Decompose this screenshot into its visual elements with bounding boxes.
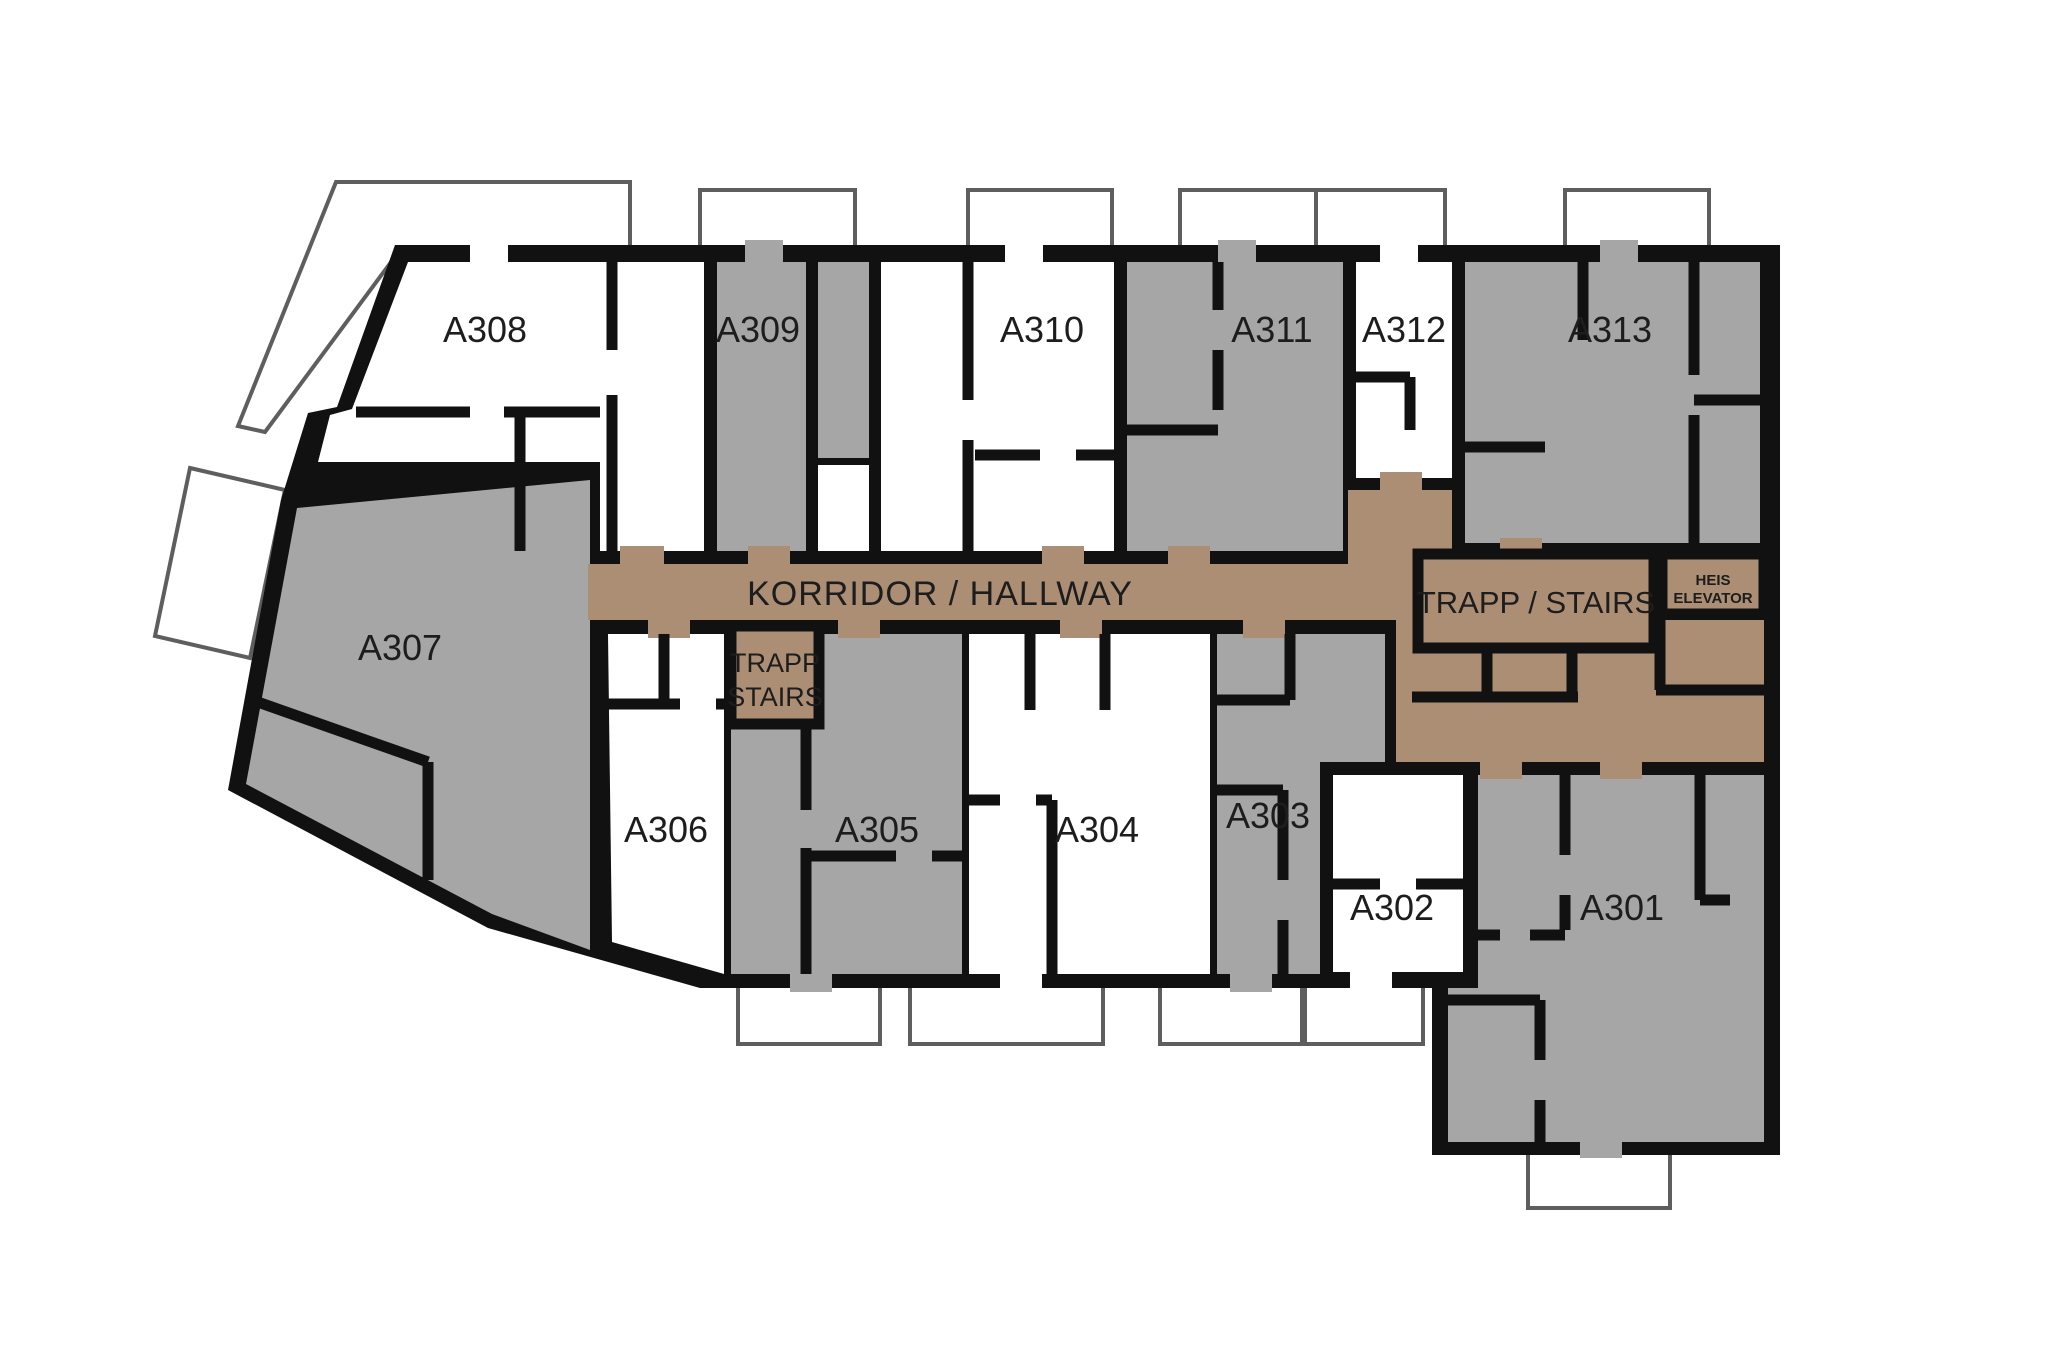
label-elevator-2: ELEVATOR bbox=[1673, 590, 1752, 607]
balcony-top-a309 bbox=[700, 190, 855, 248]
balcony-door-a312 bbox=[1380, 240, 1418, 266]
balcony-top-a312-left bbox=[1180, 190, 1316, 248]
balcony-door-a301 bbox=[1580, 1134, 1622, 1158]
label-a306: A306 bbox=[624, 809, 708, 850]
label-a308: A308 bbox=[443, 309, 527, 350]
label-elevator-1: HEIS bbox=[1695, 572, 1730, 589]
label-corridor: KORRIDOR / HALLWAY bbox=[747, 575, 1133, 613]
label-a309: A309 bbox=[716, 309, 800, 350]
door-a301 bbox=[1600, 753, 1642, 779]
label-a312: A312 bbox=[1362, 309, 1446, 350]
door-a303 bbox=[1243, 614, 1285, 638]
balcony-top-a313 bbox=[1565, 190, 1709, 248]
label-a304: A304 bbox=[1055, 809, 1139, 850]
balcony-bottom-a303 bbox=[1160, 986, 1302, 1044]
balcony-door-a304 bbox=[1000, 966, 1042, 992]
balcony-bottom-a304 bbox=[910, 986, 1103, 1044]
room-a304 bbox=[969, 634, 1210, 974]
room-a310 bbox=[881, 262, 1114, 551]
label-stairs-small-2: STAIRS bbox=[727, 682, 823, 712]
balcony-bottom-a301 bbox=[1528, 1150, 1670, 1208]
door-a308 bbox=[620, 546, 664, 568]
room-a301 bbox=[1448, 775, 1764, 1142]
door-a311 bbox=[1168, 546, 1210, 568]
room-a302 bbox=[1333, 775, 1463, 972]
label-a302: A302 bbox=[1350, 887, 1434, 928]
label-a307: A307 bbox=[358, 627, 442, 668]
balcony-door-a310 bbox=[1005, 240, 1043, 266]
label-stairs-small-1: TRAPP bbox=[730, 648, 820, 678]
balcony-top-a310 bbox=[968, 190, 1112, 248]
door-a302 bbox=[1480, 753, 1522, 779]
door-a310 bbox=[1042, 546, 1084, 568]
balcony-door-a303 bbox=[1230, 966, 1272, 992]
label-a313: A313 bbox=[1568, 309, 1652, 350]
door-a305 bbox=[838, 614, 880, 638]
label-a303: A303 bbox=[1226, 795, 1310, 836]
label-a301: A301 bbox=[1580, 887, 1664, 928]
room-a310-arm bbox=[818, 465, 869, 551]
floor-plan-page: A308 A309 A310 A311 A312 A313 A307 A306 … bbox=[0, 0, 2048, 1365]
balcony-bottom-a305 bbox=[738, 986, 880, 1044]
balcony-door-a309 bbox=[745, 240, 783, 266]
label-a311: A311 bbox=[1231, 309, 1312, 350]
label-stairs-main: TRAPP / STAIRS bbox=[1417, 585, 1655, 620]
balcony-door-a311 bbox=[1218, 240, 1256, 266]
balcony-door-a313 bbox=[1600, 240, 1638, 266]
balcony-door-a308 bbox=[470, 240, 508, 266]
label-a310: A310 bbox=[1000, 309, 1084, 350]
balcony-top-a312-right bbox=[1316, 190, 1445, 248]
label-a305: A305 bbox=[835, 809, 919, 850]
door-a312 bbox=[1380, 472, 1422, 494]
room-a309 bbox=[717, 262, 806, 551]
room-a309-col2 bbox=[818, 262, 869, 458]
room-a312 bbox=[1356, 262, 1452, 478]
balcony-bottom-a302 bbox=[1305, 986, 1423, 1044]
door-a304 bbox=[1060, 614, 1102, 638]
floor-plan-svg: A308 A309 A310 A311 A312 A313 A307 A306 … bbox=[0, 0, 2048, 1365]
door-a309 bbox=[748, 546, 790, 568]
room-a311 bbox=[1127, 262, 1343, 551]
balcony-door-a302 bbox=[1350, 966, 1392, 992]
